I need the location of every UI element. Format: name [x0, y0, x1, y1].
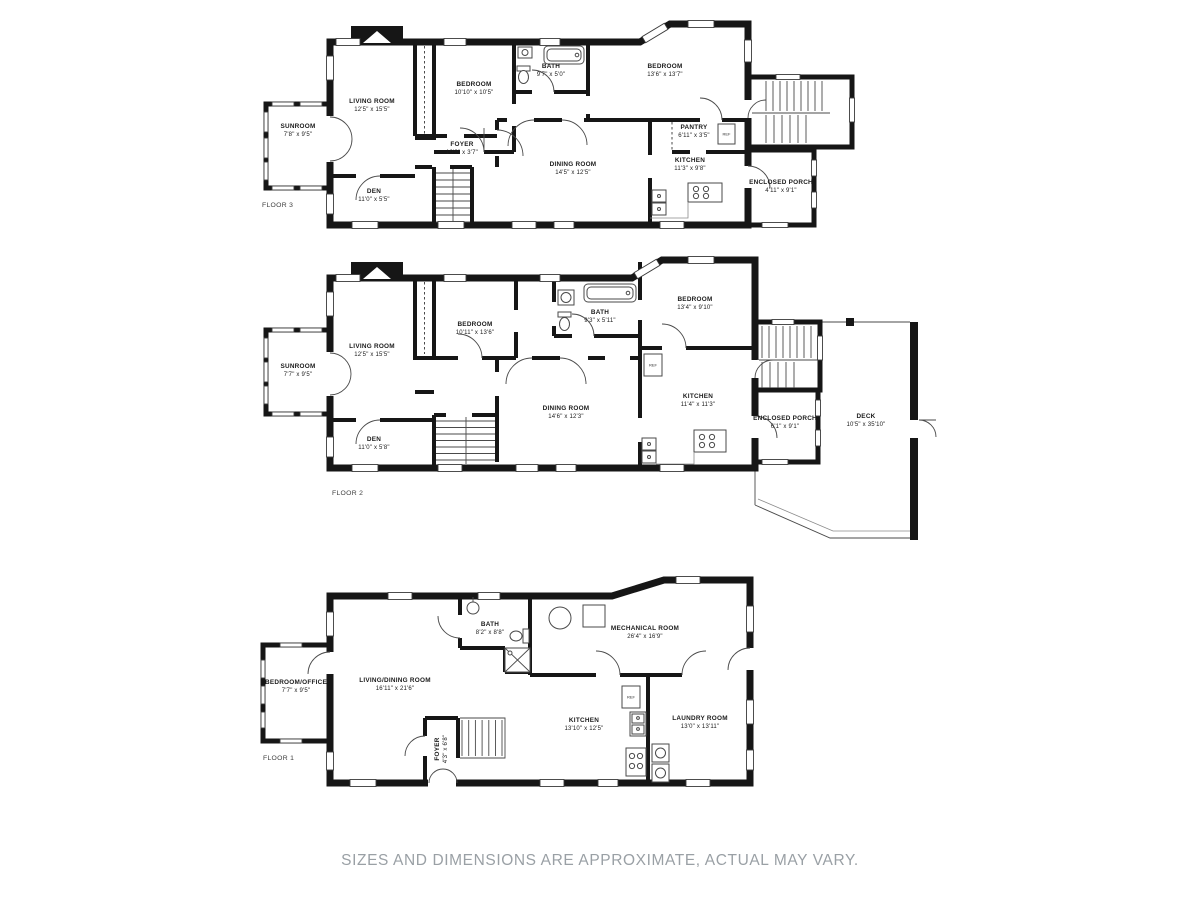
- svg-text:ENCLOSED PORCH: ENCLOSED PORCH: [749, 179, 813, 186]
- svg-text:BATH: BATH: [542, 63, 560, 70]
- svg-text:BATH: BATH: [591, 309, 609, 316]
- svg-text:10'9" x 3'7": 10'9" x 3'7": [446, 150, 478, 156]
- svg-text:BEDROOM: BEDROOM: [456, 81, 491, 88]
- svg-text:14'5" x 12'5": 14'5" x 12'5": [555, 170, 591, 176]
- svg-text:13'4" x 9'10": 13'4" x 9'10": [677, 305, 713, 311]
- floor2-label: FLOOR 2: [332, 490, 363, 497]
- svg-text:SUNROOM: SUNROOM: [280, 123, 315, 130]
- svg-text:9'3" x 5'11": 9'3" x 5'11": [584, 318, 616, 324]
- floor3-plan: REF SUNROOM 7'8" x 9'5" LIVING ROOM: [262, 21, 855, 229]
- svg-text:BEDROOM/OFFICE: BEDROOM/OFFICE: [265, 679, 328, 686]
- svg-text:LIVING ROOM: LIVING ROOM: [349, 98, 395, 105]
- svg-text:10'11" x 13'6": 10'11" x 13'6": [456, 330, 495, 336]
- svg-text:DINING ROOM: DINING ROOM: [550, 161, 597, 168]
- svg-text:DEN: DEN: [367, 188, 381, 195]
- f2-ref-label: REF: [649, 363, 658, 368]
- svg-text:LIVING/DINING ROOM: LIVING/DINING ROOM: [359, 677, 431, 684]
- svg-text:DECK: DECK: [856, 413, 875, 420]
- svg-text:8'2" x 8'8": 8'2" x 8'8": [476, 630, 504, 636]
- svg-text:LAUNDRY ROOM: LAUNDRY ROOM: [672, 715, 728, 722]
- svg-text:BATH: BATH: [481, 621, 499, 628]
- svg-text:KITCHEN: KITCHEN: [675, 157, 705, 164]
- svg-text:13'10" x 12'5": 13'10" x 12'5": [564, 726, 603, 732]
- svg-text:7'8" x 9'5": 7'8" x 9'5": [284, 132, 312, 138]
- f3-ref-label: REF: [723, 132, 732, 137]
- svg-text:12'5" x 15'5": 12'5" x 15'5": [354, 107, 390, 113]
- svg-text:13'6" x 13'7": 13'6" x 13'7": [647, 72, 683, 78]
- svg-text:10'10" x 10'5": 10'10" x 10'5": [454, 90, 493, 96]
- floorplan-drawing: REF SUNROOM 7'8" x 9'5" LIVING ROOM: [0, 0, 1200, 900]
- svg-text:11'0" x 5'5": 11'0" x 5'5": [358, 197, 390, 203]
- svg-text:KITCHEN: KITCHEN: [683, 393, 713, 400]
- svg-text:BEDROOM: BEDROOM: [647, 63, 682, 70]
- disclaimer-text: SIZES AND DIMENSIONS ARE APPROXIMATE, AC…: [0, 852, 1200, 870]
- svg-text:7'7" x 9'5": 7'7" x 9'5": [282, 688, 310, 694]
- f2-exterior-walls: [330, 260, 755, 468]
- svg-text:BEDROOM: BEDROOM: [677, 296, 712, 303]
- svg-text:7'7" x 9'5": 7'7" x 9'5": [284, 372, 312, 378]
- f3-sunroom-shell: [266, 104, 330, 188]
- svg-text:SUNROOM: SUNROOM: [280, 363, 315, 370]
- svg-text:13'0" x 13'11": 13'0" x 13'11": [681, 724, 720, 730]
- svg-text:DEN: DEN: [367, 436, 381, 443]
- svg-text:11'0" x 5'8": 11'0" x 5'8": [358, 445, 390, 451]
- svg-text:ENCLOSED PORCH: ENCLOSED PORCH: [753, 415, 817, 422]
- svg-text:11'3" x 9'8": 11'3" x 9'8": [674, 166, 706, 172]
- svg-text:14'6" x 12'3": 14'6" x 12'3": [548, 414, 584, 420]
- svg-text:4'11" x 9'1": 4'11" x 9'1": [765, 188, 797, 194]
- svg-text:PANTRY: PANTRY: [680, 124, 708, 131]
- svg-text:BEDROOM: BEDROOM: [457, 321, 492, 328]
- floor1-label: FLOOR 1: [263, 755, 294, 762]
- svg-text:16'11" x 21'6": 16'11" x 21'6": [376, 686, 415, 692]
- svg-text:DINING ROOM: DINING ROOM: [543, 405, 590, 412]
- svg-text:FOYER: FOYER: [434, 737, 441, 760]
- floor3-label: FLOOR 3: [262, 202, 293, 209]
- svg-text:KITCHEN: KITCHEN: [569, 717, 599, 724]
- f3-stair-shell: [748, 77, 852, 147]
- svg-text:MECHANICAL ROOM: MECHANICAL ROOM: [611, 625, 679, 632]
- floor2-plan: REF SUNROOM 7'7" x 9'5": [264, 257, 936, 541]
- svg-text:9'7" x 5'0": 9'7" x 5'0": [537, 72, 565, 78]
- svg-text:6'11" x 3'5": 6'11" x 3'5": [678, 133, 710, 139]
- svg-text:LIVING ROOM: LIVING ROOM: [349, 343, 395, 350]
- svg-text:10'5" x 35'10": 10'5" x 35'10": [846, 422, 885, 428]
- f1-ref-label: REF: [627, 695, 636, 700]
- svg-text:FOYER: FOYER: [450, 141, 473, 148]
- f2-stair-shell: [755, 322, 820, 390]
- floorplan-page: REF SUNROOM 7'8" x 9'5" LIVING ROOM: [0, 0, 1200, 900]
- room-label-deck-f2: DECK 10'5" x 35'10": [846, 413, 885, 428]
- svg-text:6'1" x 9'1": 6'1" x 9'1": [771, 424, 799, 430]
- svg-text:26'4" x 16'9": 26'4" x 16'9": [627, 634, 663, 640]
- f3-refrigerator: REF: [718, 124, 735, 144]
- svg-text:12'5" x 15'5": 12'5" x 15'5": [354, 352, 390, 358]
- svg-text:4'3" x 6'8": 4'3" x 6'8": [443, 735, 449, 763]
- svg-text:11'4" x 11'3": 11'4" x 11'3": [681, 402, 716, 408]
- floor1-plan: REF BEDROOM/OFFICE 7'7": [261, 577, 754, 788]
